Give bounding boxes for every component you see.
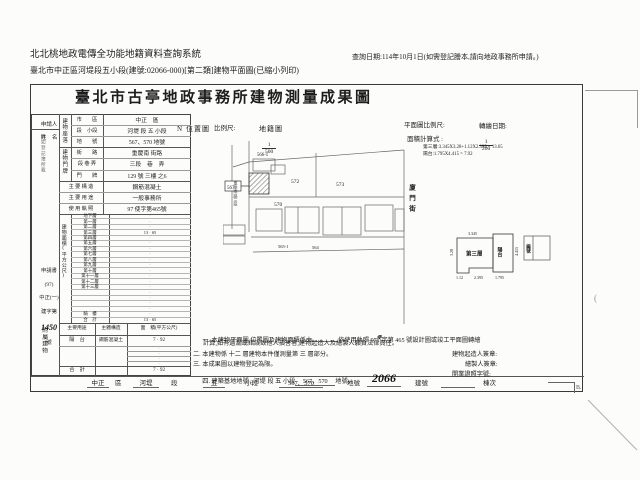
floor-value: · — [109, 241, 191, 245]
table-row: 市 區 中正 區 — [71, 114, 191, 125]
floor-value: · — [109, 274, 191, 278]
strip-section-value: 河堤 — [133, 380, 159, 388]
floor-value: · — [109, 280, 191, 284]
note-4a: 四. 建築基地地號 : 河堤 段 五 小段 — [202, 378, 295, 385]
strip-district-value: 中正 — [87, 380, 109, 388]
row-label: 主 要 構 造 — [59, 183, 103, 190]
application-no-line2: (97) — [45, 282, 54, 288]
note-4: 四. 建築基地地號 : 河堤 段 五 小段567、570地號。 — [193, 369, 354, 393]
row-label: 主 要 用 途 — [59, 194, 103, 201]
parcel-label-572: 572 — [291, 179, 300, 185]
parcel-label-570: 570 — [274, 202, 283, 208]
strip-building-unit: 建號 — [415, 380, 428, 387]
floor-value: · — [109, 236, 191, 240]
attached-total-label: 合 計 — [59, 368, 95, 374]
row-value: 一般事務所 — [103, 193, 191, 202]
row-value: 鋼筋混凝土 — [103, 182, 191, 191]
application-no-line5: 號 — [46, 340, 51, 346]
strip-building-number: 2066 — [367, 372, 401, 387]
attached-row-area: 7 · 92 — [127, 338, 191, 344]
index-box-label: 編號 — [526, 243, 532, 255]
applicant-name-note: 詳如登記簿所載 — [41, 134, 46, 210]
application-no-line4: 建字第 — [41, 309, 57, 315]
note-4-parcels: 567、570 — [295, 376, 335, 386]
subject-building-parcel — [249, 173, 269, 194]
note-3: 三. 本成果圖以建物登記為限。 — [193, 359, 277, 368]
street-label-xiamen-st: 廈門街 — [408, 183, 417, 216]
scanned-survey-document: 北北桃地政電傳全功能地籍資料查詢系統 查詢日期:114年10月1日(如需登記謄本… — [0, 0, 640, 480]
dim-left: 3.28 — [449, 249, 454, 256]
row-label: 段 小段 — [71, 127, 103, 134]
application-no-line3: 中正(一) — [39, 295, 58, 301]
floor-value: · — [109, 301, 191, 305]
floor-value: · — [109, 247, 191, 251]
strip-district-unit: 區 — [115, 380, 122, 387]
floor-value: · — [109, 214, 191, 218]
floor-plan-drawing: 第三層 陽台 3.345 3.28 1.12 2.395 1.795 4.415… — [436, 216, 561, 288]
row-value: 97 使字第465號 — [103, 204, 191, 213]
floor-value: · — [109, 220, 191, 224]
strip-block-blank — [441, 380, 475, 388]
balcony-label: 陽台 — [497, 246, 503, 258]
table-row: 主 要 用 途 一般事務所 — [59, 192, 191, 203]
floor-label: 騎 樓 — [71, 312, 109, 316]
query-date: 查詢日期:114年10月1日(如需登記謄本,請向地政事務所申請。) — [352, 53, 539, 61]
dim-balcony-bottom: 1.795 — [495, 275, 504, 280]
table-row: 段 巷 弄 三段 巷 弄 — [71, 158, 191, 169]
floor-value: · — [109, 296, 191, 300]
row-value: 河堤 段 五 小段 — [103, 126, 191, 135]
parcel-label-565: 565-1 — [278, 244, 289, 249]
table-row: 地 號 567、570 地號 — [71, 136, 191, 147]
dim-balcony-right: 4.415 — [514, 247, 519, 256]
dim-bottom: 2.395 — [474, 275, 483, 280]
redraw-date-label: 轉繪日期: — [479, 123, 507, 130]
building-seat-group-label: 建物座落 — [61, 118, 67, 146]
floor-value: 13 · 65 — [109, 318, 191, 322]
attached-header-use: 主要用途 — [59, 326, 95, 332]
floor-value: 13 · 65 — [109, 231, 191, 235]
drafter-signature-label: 繪製人簽章: — [465, 359, 498, 368]
builder-signature-label: 建物起造人簽章: — [452, 349, 497, 358]
table-row: 主 要 構 造 鋼筋混凝土 — [59, 181, 191, 192]
floor-label: 第二層 — [71, 225, 109, 229]
area-calc-line-1: 第三層:3.345X3.28+1.12X2.395 = 13.65 — [423, 145, 503, 151]
row-label: 門 牌 — [71, 172, 103, 179]
strip-mark: B. — [576, 385, 582, 392]
attached-row-use: 陽 台 — [59, 338, 95, 344]
parcel-label-566: 566-1 — [257, 153, 269, 158]
survey-form: 臺北市古亭地政事務所建物測量成果圖 N 位置圖 比例尺: 1500 地籍圖 平面… — [30, 84, 583, 392]
floor-label: 第十一層 — [71, 274, 109, 278]
floor-value: · — [109, 285, 191, 289]
strip-block-unit: 棟次 — [483, 380, 496, 387]
fold-mark-bracket — [548, 382, 575, 393]
strip-section-unit: 段 — [171, 380, 178, 387]
table-row: 段 小段 河堤 段 五 小段 — [71, 125, 191, 136]
street-label-chongqing-s-rd: 重慶南路三段 — [233, 180, 239, 208]
attached-filler-dot: · — [127, 362, 191, 367]
floor-label: 第九層 — [71, 263, 109, 267]
fold-mark — [585, 90, 637, 91]
parcel-label-564: 564 — [312, 245, 320, 250]
applicant-label-line1: 申請人 — [41, 122, 58, 128]
location-map: 567 566-1 572 573 570 565-1 564 重慶南路三段 廈… — [223, 129, 433, 334]
row-value: 567、570 地號 — [103, 137, 191, 146]
scan-artifact-paren: ( — [594, 293, 597, 303]
row-label: 地 號 — [71, 138, 103, 145]
attached-total-area: 7 · 92 — [127, 368, 191, 374]
grid-line — [59, 335, 191, 336]
row-value: 中正 區 — [103, 115, 191, 124]
floor-label: 第十二層 — [71, 280, 109, 284]
floor-label: 第五層 — [71, 241, 109, 245]
parcel-label-573: 573 — [336, 182, 345, 188]
floor-total-row: 合 計13 · 65 — [71, 318, 191, 323]
attached-row-structure: 鋼筋混凝土 — [95, 338, 127, 344]
attached-header-structure: 主體構造 — [95, 326, 127, 332]
floor-value: · — [109, 258, 191, 262]
note-1-line-2: 計算,如有遺漏或錯誤致他人損害者,建物起造人及繪製人願負法律責任。 — [203, 338, 398, 347]
table-row: 街 路 重慶南 街路 — [71, 147, 191, 158]
floor-value: · — [109, 252, 191, 256]
fold-mark — [637, 90, 638, 128]
row-label: 市 區 — [71, 116, 103, 123]
floor-label: 第七層 — [71, 252, 109, 256]
row-value: 重慶南 街路 — [103, 148, 191, 157]
row-label: 街 路 — [71, 149, 103, 156]
row-label: 使 用 執 照 — [59, 205, 103, 212]
floor-value: · — [109, 269, 191, 273]
doc-type-line: 臺北市中正區河堤段五小段(建號:02066-000)[第二類]建物平面圖(已縮小… — [30, 66, 299, 75]
system-title: 北北桃地政電傳全功能地籍資料查詢系統 — [30, 50, 201, 61]
floor-value: · — [109, 291, 191, 295]
attached-building-group-label: 附屬建物 — [40, 327, 47, 373]
floor-label: 第十三層 — [71, 285, 109, 289]
room-label: 第三層 — [466, 250, 483, 258]
floor-value: · — [109, 225, 191, 229]
attached-header-area: 面 積(平方公尺) — [127, 326, 191, 332]
grid-line — [59, 323, 191, 324]
form-title: 臺北市古亭地政事務所建物測量成果圖 — [75, 90, 373, 107]
building-door-group-label: 建物門牌 — [61, 149, 67, 177]
dim-top: 3.345 — [468, 231, 477, 236]
table-row: 門 牌 129 號 三樓 之6 — [71, 170, 191, 181]
row-label: 段 巷 弄 — [71, 160, 103, 167]
scan-crease — [585, 395, 640, 455]
row-value: 三段 巷 弄 — [103, 159, 191, 168]
floor-value: · — [109, 312, 191, 316]
floor-label: 合 計 — [71, 318, 109, 322]
building-area-group-label: 建物面積(平方公尺) — [60, 224, 66, 316]
note-2: 二. 本建物係 十二 層建物本件僅測量第 三 層部分。 — [193, 349, 332, 358]
table-row: 使 用 執 照 97 使字第465號 — [59, 203, 191, 214]
parcel-boundaries — [223, 141, 404, 324]
floor-label: 地下層 — [71, 214, 109, 218]
dim-step: 1.12 — [456, 275, 463, 280]
license-number-label: 開業證照字號: — [452, 369, 491, 378]
application-no-line1: 申請書 — [41, 268, 57, 274]
floor-label: 第三層 — [71, 231, 109, 235]
note-4c: 地號。 — [335, 378, 354, 385]
floor-value: · — [109, 307, 191, 311]
row-value: 129 號 三樓 之6 — [103, 171, 191, 180]
floor-value: · — [109, 263, 191, 267]
